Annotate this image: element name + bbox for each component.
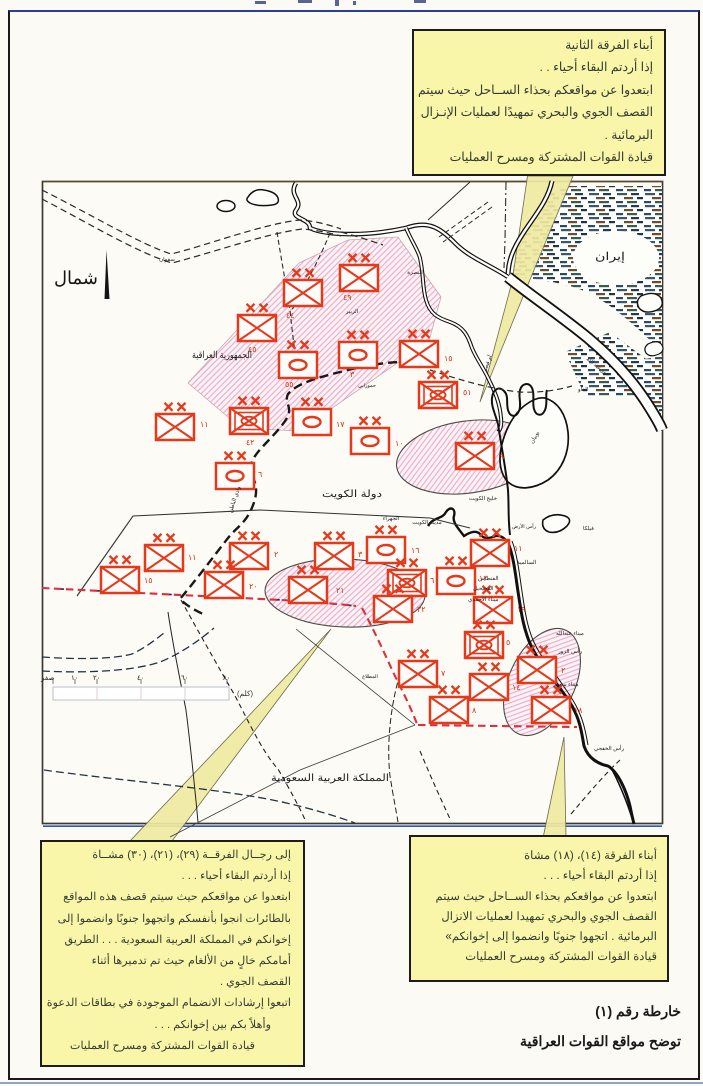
svg-text:حمورابي: حمورابي — [358, 383, 376, 389]
svg-text:٨٠: ٨٠ — [223, 675, 231, 682]
svg-text:٤٢: ٤٢ — [246, 438, 255, 447]
svg-text:٥١: ٥١ — [463, 388, 472, 397]
svg-text:١٥: ١٥ — [444, 354, 453, 363]
svg-text:١٩: ١٩ — [517, 605, 526, 614]
svg-text:١٤: ١٤ — [512, 683, 521, 692]
svg-text:الجمهورية العراقية: الجمهورية العراقية — [192, 350, 252, 361]
svg-text:٣: ٣ — [350, 370, 355, 379]
svg-text:٩: ٩ — [500, 452, 504, 461]
svg-text:١٨: ١٨ — [574, 706, 583, 715]
svg-text:٢: ٢ — [274, 550, 278, 559]
svg-text:٢١: ٢١ — [336, 586, 345, 595]
svg-text:١٥: ١٥ — [144, 576, 153, 585]
svg-text:٣: ٣ — [358, 550, 363, 559]
svg-text:المطلاع: المطلاع — [362, 674, 378, 680]
svg-text:ميناء سعود: ميناء سعود — [554, 681, 579, 688]
svg-text:٨: ٨ — [472, 706, 477, 715]
svg-text:٤٤: ٤٤ — [286, 311, 295, 320]
svg-text:مدينة الكويت: مدينة الكويت — [412, 519, 442, 526]
svg-text:١٧: ١٧ — [336, 420, 345, 429]
svg-text:الجهراء: الجهراء — [383, 515, 400, 522]
svg-text:١١: ١١ — [188, 553, 197, 562]
svg-text:ميناء عبدالله: ميناء عبدالله — [556, 630, 584, 637]
svg-text:سفوان: سفوان — [159, 256, 175, 263]
svg-text:صفر: صفر — [40, 675, 54, 682]
svg-text:٧: ٧ — [441, 669, 446, 678]
svg-text:٥٥: ٥٥ — [285, 380, 294, 389]
svg-text:١١: ١١ — [200, 420, 209, 429]
svg-text:٦٠: ٦٠ — [181, 675, 189, 682]
svg-text:١٠: ١٠ — [395, 439, 404, 448]
svg-text:رأس الأرض: رأس الأرض — [512, 522, 537, 530]
svg-text:الفنطاس: الفنطاس — [478, 575, 499, 582]
svg-text:٤٠: ٤٠ — [137, 675, 145, 682]
svg-text:الزبير: الزبير — [345, 308, 359, 315]
svg-text:المملكة العربية السعودية: المملكة العربية السعودية — [271, 773, 389, 784]
svg-text:١٦: ١٦ — [411, 546, 420, 555]
svg-text:٦: ٦ — [258, 470, 262, 479]
svg-text:فيلكا: فيلكا — [583, 525, 594, 532]
svg-text:١٠: ١٠ — [71, 675, 79, 682]
svg-text:(كلم): (كلم) — [237, 689, 254, 698]
svg-text:٤٩: ٤٩ — [343, 293, 352, 302]
svg-text:٢٠: ٢٠ — [93, 675, 101, 682]
svg-text:شمال: شمال — [54, 268, 98, 288]
svg-text:٢٠: ٢٠ — [249, 582, 258, 591]
svg-text:٥: ٥ — [506, 638, 510, 647]
svg-text:البصرة: البصرة — [407, 269, 423, 276]
svg-text:الفحيحيل: الفحيحيل — [473, 585, 494, 592]
svg-text:السالمية: السالمية — [517, 559, 537, 566]
svg-text:الفاو: الفاو — [577, 386, 589, 393]
svg-text:دولة الكويت: دولة الكويت — [322, 489, 382, 500]
svg-text:إيران: إيران — [595, 251, 625, 263]
svg-text:٢٢: ٢٢ — [417, 605, 426, 614]
svg-text:٢: ٢ — [561, 666, 565, 675]
svg-text:٦: ٦ — [430, 576, 434, 585]
svg-text:١١: ١١ — [514, 544, 523, 553]
svg-text:خليج الكويت: خليج الكويت — [469, 495, 498, 502]
